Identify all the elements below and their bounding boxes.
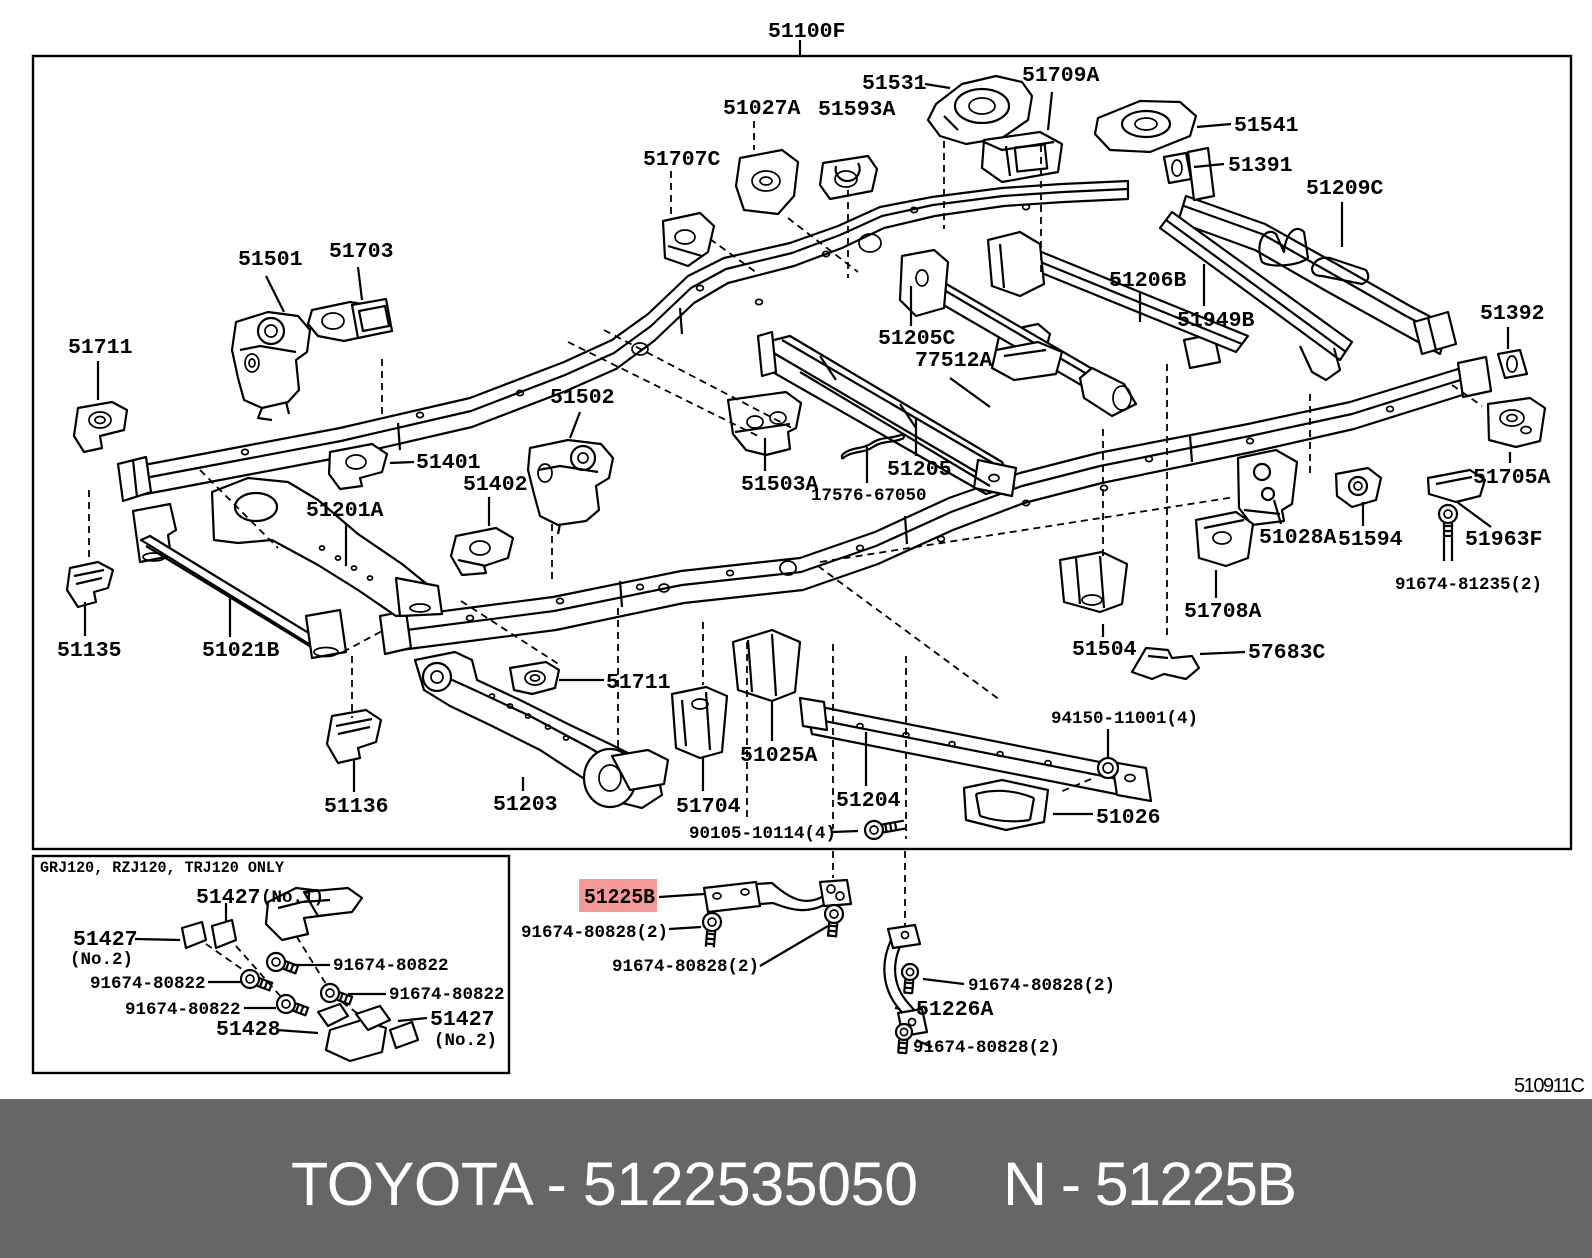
- svg-text:51504: 51504: [1072, 638, 1137, 662]
- svg-text:91674-80822: 91674-80822: [389, 985, 505, 1005]
- svg-text:GRJ120, RZJ120, TRJ120 ONLY: GRJ120, RZJ120, TRJ120 ONLY: [40, 859, 284, 877]
- svg-text:(No.2): (No.2): [70, 950, 133, 970]
- svg-text:51705A: 51705A: [1473, 466, 1551, 490]
- svg-text:91674-80828(2): 91674-80828(2): [521, 923, 668, 943]
- svg-text:51541: 51541: [1234, 114, 1299, 138]
- svg-text:51711: 51711: [606, 671, 671, 695]
- svg-text:77512A: 77512A: [915, 349, 993, 373]
- svg-text:91674-80822: 91674-80822: [333, 956, 449, 976]
- svg-text:TOYOTA - 5122535050: TOYOTA - 5122535050: [291, 1150, 918, 1218]
- svg-text:51028A: 51028A: [1259, 526, 1337, 550]
- svg-text:51209C: 51209C: [1306, 177, 1384, 201]
- svg-text:51201A: 51201A: [306, 499, 384, 523]
- svg-text:17576-67050: 17576-67050: [811, 486, 927, 506]
- svg-text:51427: 51427: [430, 1008, 495, 1032]
- svg-text:51205C: 51205C: [878, 327, 956, 351]
- svg-text:51025A: 51025A: [740, 744, 818, 768]
- svg-text:510911C: 510911C: [1514, 1075, 1585, 1097]
- svg-text:51021B: 51021B: [202, 639, 280, 663]
- svg-text:51427: 51427: [73, 928, 138, 952]
- svg-text:91674-80828(2): 91674-80828(2): [968, 976, 1115, 996]
- svg-text:51136: 51136: [324, 795, 389, 819]
- svg-text:91674-80828(2): 91674-80828(2): [612, 957, 759, 977]
- svg-text:51206B: 51206B: [1109, 269, 1187, 293]
- svg-text:51392: 51392: [1480, 302, 1545, 326]
- svg-text:51708A: 51708A: [1184, 600, 1262, 624]
- svg-text:51225B: 51225B: [584, 886, 655, 910]
- svg-text:(No.1): (No.1): [261, 888, 324, 908]
- svg-text:51949B: 51949B: [1177, 309, 1255, 333]
- svg-text:51704: 51704: [676, 795, 741, 819]
- svg-text:51203: 51203: [493, 793, 558, 817]
- svg-text:51135: 51135: [57, 639, 122, 663]
- svg-text:51205: 51205: [887, 458, 952, 482]
- svg-text:57683C: 57683C: [1248, 641, 1326, 665]
- svg-text:(No.2): (No.2): [434, 1031, 497, 1051]
- svg-text:51026: 51026: [1096, 806, 1161, 830]
- svg-text:51593A: 51593A: [818, 98, 896, 122]
- svg-text:94150-11001(4): 94150-11001(4): [1051, 709, 1198, 729]
- svg-text:51501: 51501: [238, 248, 303, 272]
- svg-text:51707C: 51707C: [643, 148, 721, 172]
- svg-text:91674-81235(2): 91674-81235(2): [1395, 575, 1542, 595]
- svg-text:51709A: 51709A: [1022, 64, 1100, 88]
- svg-text:51391: 51391: [1228, 154, 1293, 178]
- svg-text:51226A: 51226A: [916, 998, 994, 1022]
- svg-text:91674-80822: 91674-80822: [90, 974, 206, 994]
- svg-text:51963F: 51963F: [1465, 528, 1542, 552]
- svg-text:91674-80822: 91674-80822: [125, 1000, 241, 1020]
- svg-text:51427: 51427: [196, 886, 261, 910]
- svg-text:51503A: 51503A: [741, 473, 819, 497]
- svg-text:91674-80828(2): 91674-80828(2): [913, 1038, 1060, 1058]
- svg-text:51703: 51703: [329, 240, 394, 264]
- svg-text:N - 51225B: N - 51225B: [1003, 1150, 1297, 1218]
- svg-text:51027A: 51027A: [723, 97, 801, 121]
- svg-text:51502: 51502: [550, 386, 615, 410]
- svg-text:51711: 51711: [68, 336, 133, 360]
- svg-text:51402: 51402: [463, 473, 528, 497]
- svg-text:51204: 51204: [836, 789, 901, 813]
- svg-text:51401: 51401: [416, 451, 481, 475]
- svg-text:90105-10114(4): 90105-10114(4): [689, 824, 836, 844]
- svg-text:51594: 51594: [1338, 528, 1403, 552]
- svg-text:51531: 51531: [862, 72, 927, 96]
- svg-text:51100F: 51100F: [768, 20, 845, 44]
- svg-text:51428: 51428: [216, 1018, 281, 1042]
